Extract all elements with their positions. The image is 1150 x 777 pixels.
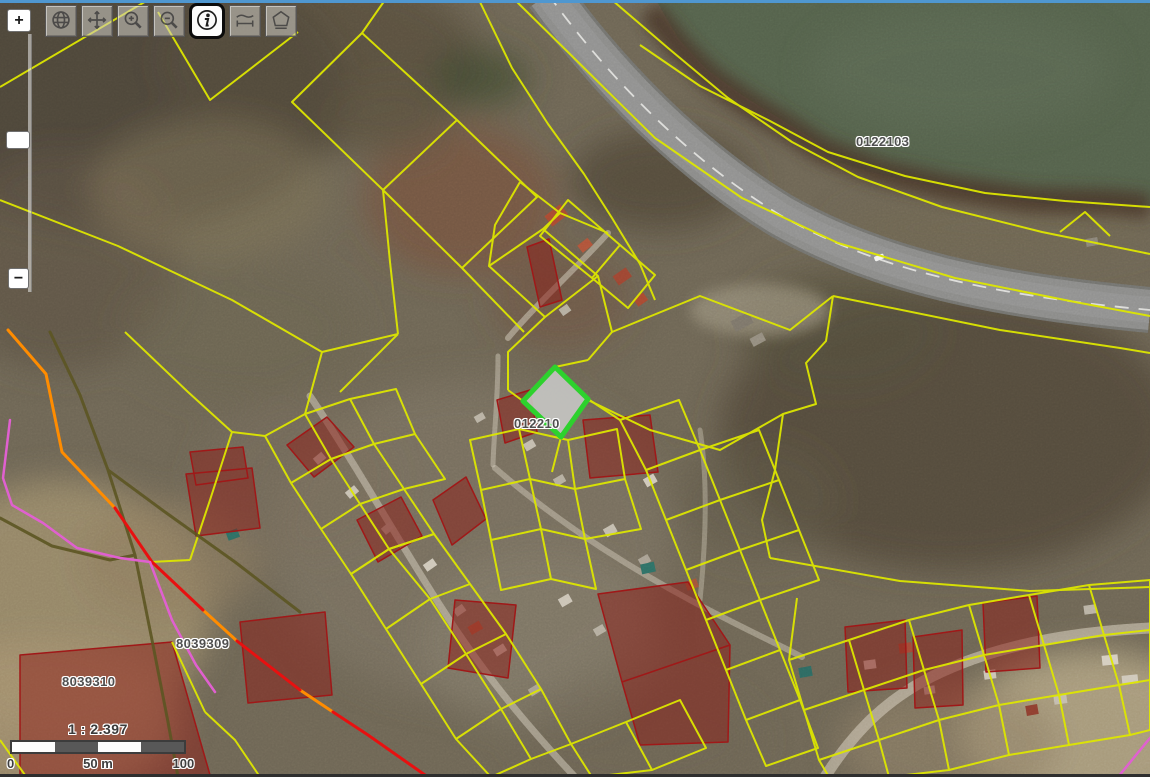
toolbar-button-measure-distance[interactable]: [229, 5, 261, 37]
scale-bar-ticks: 0 50 m 100 m: [10, 756, 186, 773]
parcel-label: 8039309: [176, 636, 229, 651]
magnifier-minus-icon: [158, 9, 180, 34]
map-application-window: + − 0122103 012210 8039309 8039310 1 : 2…: [0, 0, 1150, 777]
scale-ratio-label: 1 : 2.397: [10, 721, 186, 737]
map-canvas[interactable]: [0, 0, 1150, 777]
scale-tick-start: 0: [7, 756, 14, 771]
ruler-icon: [234, 9, 256, 34]
scale-segment: [141, 742, 184, 752]
toolbar-button-pan[interactable]: [81, 5, 113, 37]
zoom-slider-track[interactable]: [28, 34, 32, 292]
parcel-label: 0122103: [856, 134, 909, 149]
window-top-border: [0, 0, 1150, 3]
toolbar-button-zoom-in[interactable]: [117, 5, 149, 37]
info-icon: [195, 8, 219, 35]
scale-segment: [98, 742, 141, 752]
scale-segment: [12, 742, 55, 752]
scale-tick-mid: 50 m: [83, 756, 113, 771]
scale-bar-segments: [10, 740, 186, 754]
magnifier-plus-icon: [122, 9, 144, 34]
zoom-out-button[interactable]: −: [8, 268, 29, 289]
parcel-label: 012210: [514, 416, 560, 431]
zoom-in-button[interactable]: +: [7, 9, 31, 32]
parcel-label: 8039310: [62, 674, 115, 689]
area-polygon-icon: [270, 9, 292, 34]
pan-arrows-icon: [86, 9, 108, 34]
toolbar-button-full-extent[interactable]: [45, 5, 77, 37]
map-toolbar: [45, 5, 301, 39]
zoom-slider-handle[interactable]: [6, 131, 30, 149]
toolbar-button-zoom-out[interactable]: [153, 5, 185, 37]
globe-icon: [50, 9, 72, 34]
scale-bar: 1 : 2.397 0 50 m 100 m: [10, 721, 186, 773]
toolbar-button-identify[interactable]: [189, 3, 225, 39]
scale-segment: [55, 742, 98, 752]
toolbar-button-measure-area[interactable]: [265, 5, 297, 37]
